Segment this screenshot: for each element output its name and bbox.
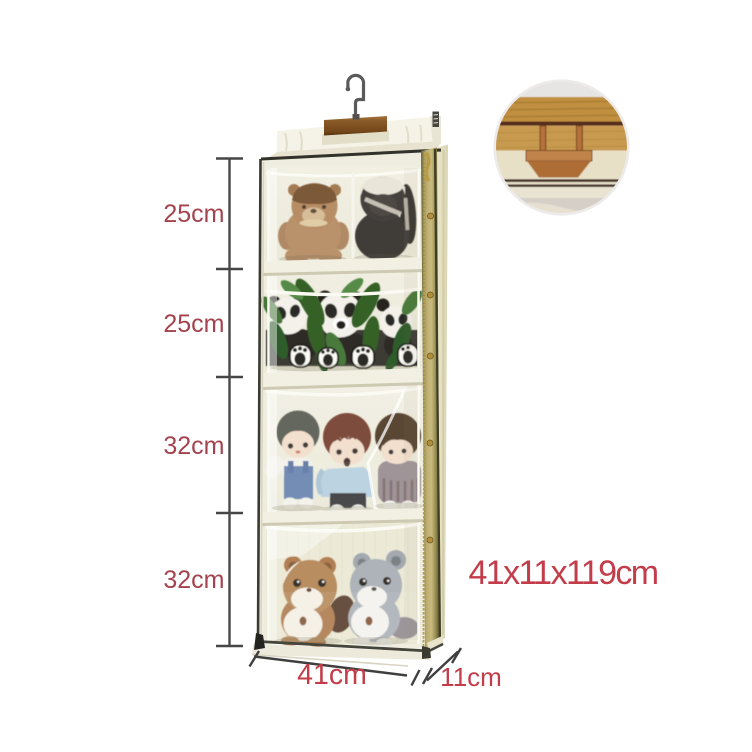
- svg-text:41cm: 41cm: [297, 659, 367, 691]
- svg-text:25cm: 25cm: [163, 200, 224, 228]
- svg-text:41x11x119cm: 41x11x119cm: [468, 554, 657, 592]
- svg-text:11cm: 11cm: [440, 662, 502, 692]
- svg-text:25cm: 25cm: [163, 310, 224, 338]
- svg-text:32cm: 32cm: [163, 432, 224, 460]
- svg-text:32cm: 32cm: [163, 566, 224, 594]
